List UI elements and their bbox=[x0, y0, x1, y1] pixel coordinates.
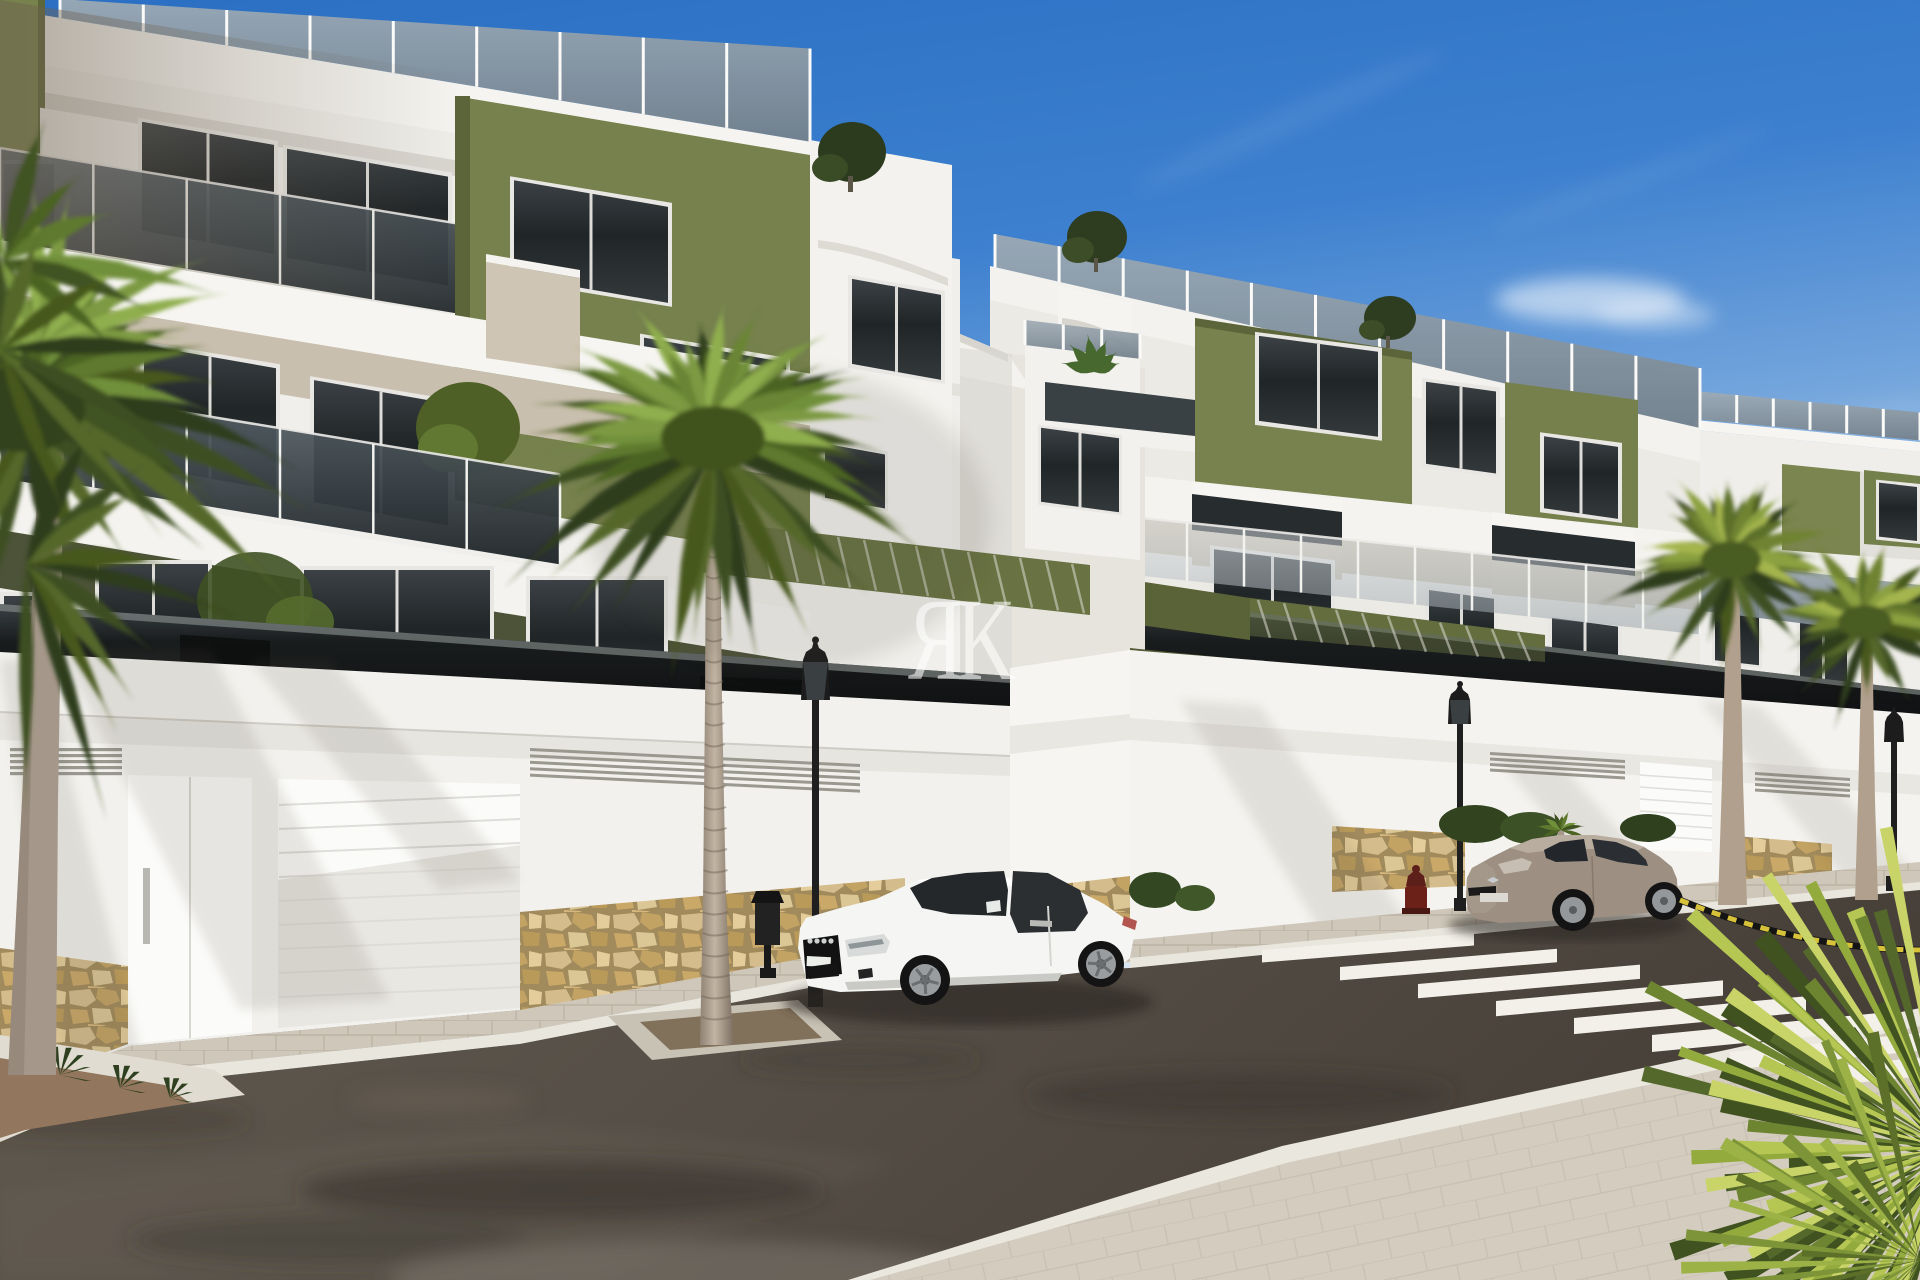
svg-text:ЯK: ЯK bbox=[908, 575, 1015, 706]
